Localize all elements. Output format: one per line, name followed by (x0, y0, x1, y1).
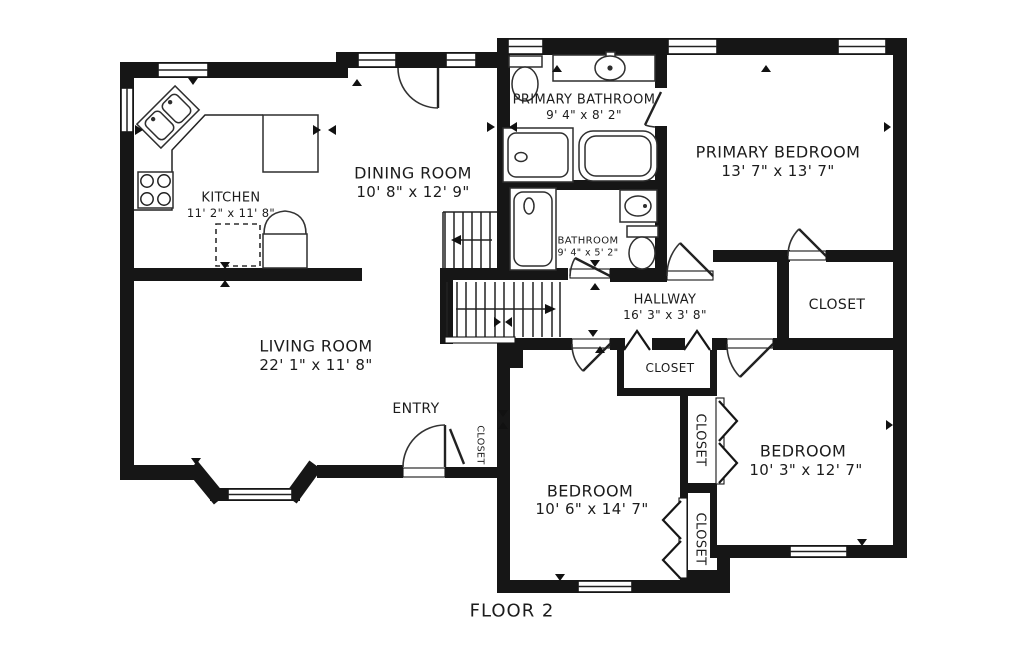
room-label-primary-bedroom: PRIMARY BEDROOM (696, 143, 861, 162)
bathtub-icon (510, 188, 556, 270)
closet-label-between-top: CLOSET (693, 414, 708, 467)
vanity-sink-icon (553, 52, 655, 81)
shower-icon (503, 128, 573, 182)
dishwasher-dashed (216, 224, 260, 266)
room-dims-bedroom-right: 10' 3" x 12' 7" (749, 461, 862, 479)
room-dims-hallway: 16' 3" x 3' 8" (623, 308, 707, 322)
room-label-entry: ENTRY (392, 401, 439, 417)
floor-title: FLOOR 2 (470, 601, 555, 622)
closet-label-between-bottom: CLOSET (693, 513, 708, 566)
entry-closet-door (450, 429, 464, 464)
closet-label-entry: CLOSET (475, 425, 486, 464)
toilet-icon (627, 226, 658, 269)
room-label-primary-bathroom: PRIMARY BATHROOM (513, 93, 656, 108)
sink-icon (620, 190, 657, 222)
stove-icon (138, 172, 173, 208)
handrail (445, 337, 515, 343)
bedroom-right-door (727, 344, 773, 377)
room-dims-bedroom-center: 10' 6" x 14' 7" (535, 500, 648, 518)
room-dims-dining-room: 10' 8" x 12' 9" (356, 183, 469, 201)
floorplan: KITCHEN 11' 2" x 11' 8" DINING ROOM 10' … (0, 0, 1024, 664)
room-dims-kitchen: 11' 2" x 11' 8" (187, 206, 275, 220)
closet-label-hallway: CLOSET (645, 361, 694, 375)
dining-door (398, 68, 438, 108)
room-dims-primary-bathroom: 9' 4" x 8' 2" (546, 108, 622, 122)
closet-label-primary: CLOSET (809, 297, 866, 313)
room-label-bedroom-center: BEDROOM (547, 482, 633, 501)
kitchen-fixtures (134, 86, 318, 268)
room-dims-living-room: 22' 1" x 11' 8" (259, 356, 372, 374)
room-dims-primary-bedroom: 13' 7" x 13' 7" (721, 162, 834, 180)
bathtub-icon (579, 131, 657, 181)
room-label-bathroom: BATHROOM (557, 236, 618, 247)
room-label-dining-room: DINING ROOM (354, 164, 472, 183)
room-label-kitchen: KITCHEN (201, 191, 260, 206)
closet-between-bottom-bifold (663, 501, 681, 579)
room-label-bedroom-right: BEDROOM (760, 442, 846, 461)
kitchen-sink-icon (137, 86, 199, 148)
kitchen-peninsula (263, 115, 318, 172)
entry-door (403, 425, 445, 467)
room-dims-bathroom: 9' 4" x 5' 2" (557, 248, 618, 259)
room-label-living-room: LIVING ROOM (259, 337, 372, 356)
room-label-hallway: HALLWAY (634, 293, 697, 308)
